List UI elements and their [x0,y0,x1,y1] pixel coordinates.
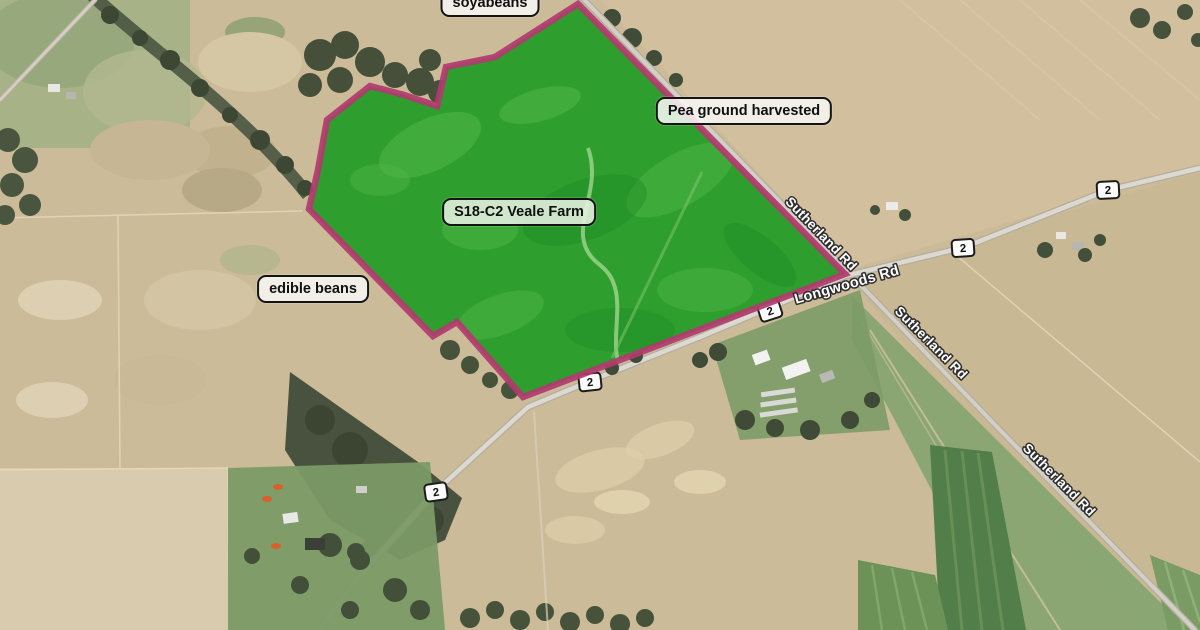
crop-label-pea-ground-harvested[interactable]: Pea ground harvested [656,97,832,125]
crop-label-edible-beans[interactable]: edible beans [257,275,369,303]
crop-label-soyabeans[interactable]: soyabeans [441,0,540,17]
route-2-number: 2 [586,377,594,390]
map-canvas[interactable]: 2 2 2 2 2 [0,0,1200,630]
route-2-shield: 2 [1097,181,1120,199]
route-2-shield: 2 [951,239,974,257]
satellite-map: 2 2 2 2 2 [0,0,1200,630]
route-2-number: 2 [1105,185,1112,197]
route-2-shield: 2 [424,482,448,502]
field-label-veale-farm[interactable]: S18-C2 Veale Farm [442,198,596,226]
route-2-number: 2 [959,243,966,255]
